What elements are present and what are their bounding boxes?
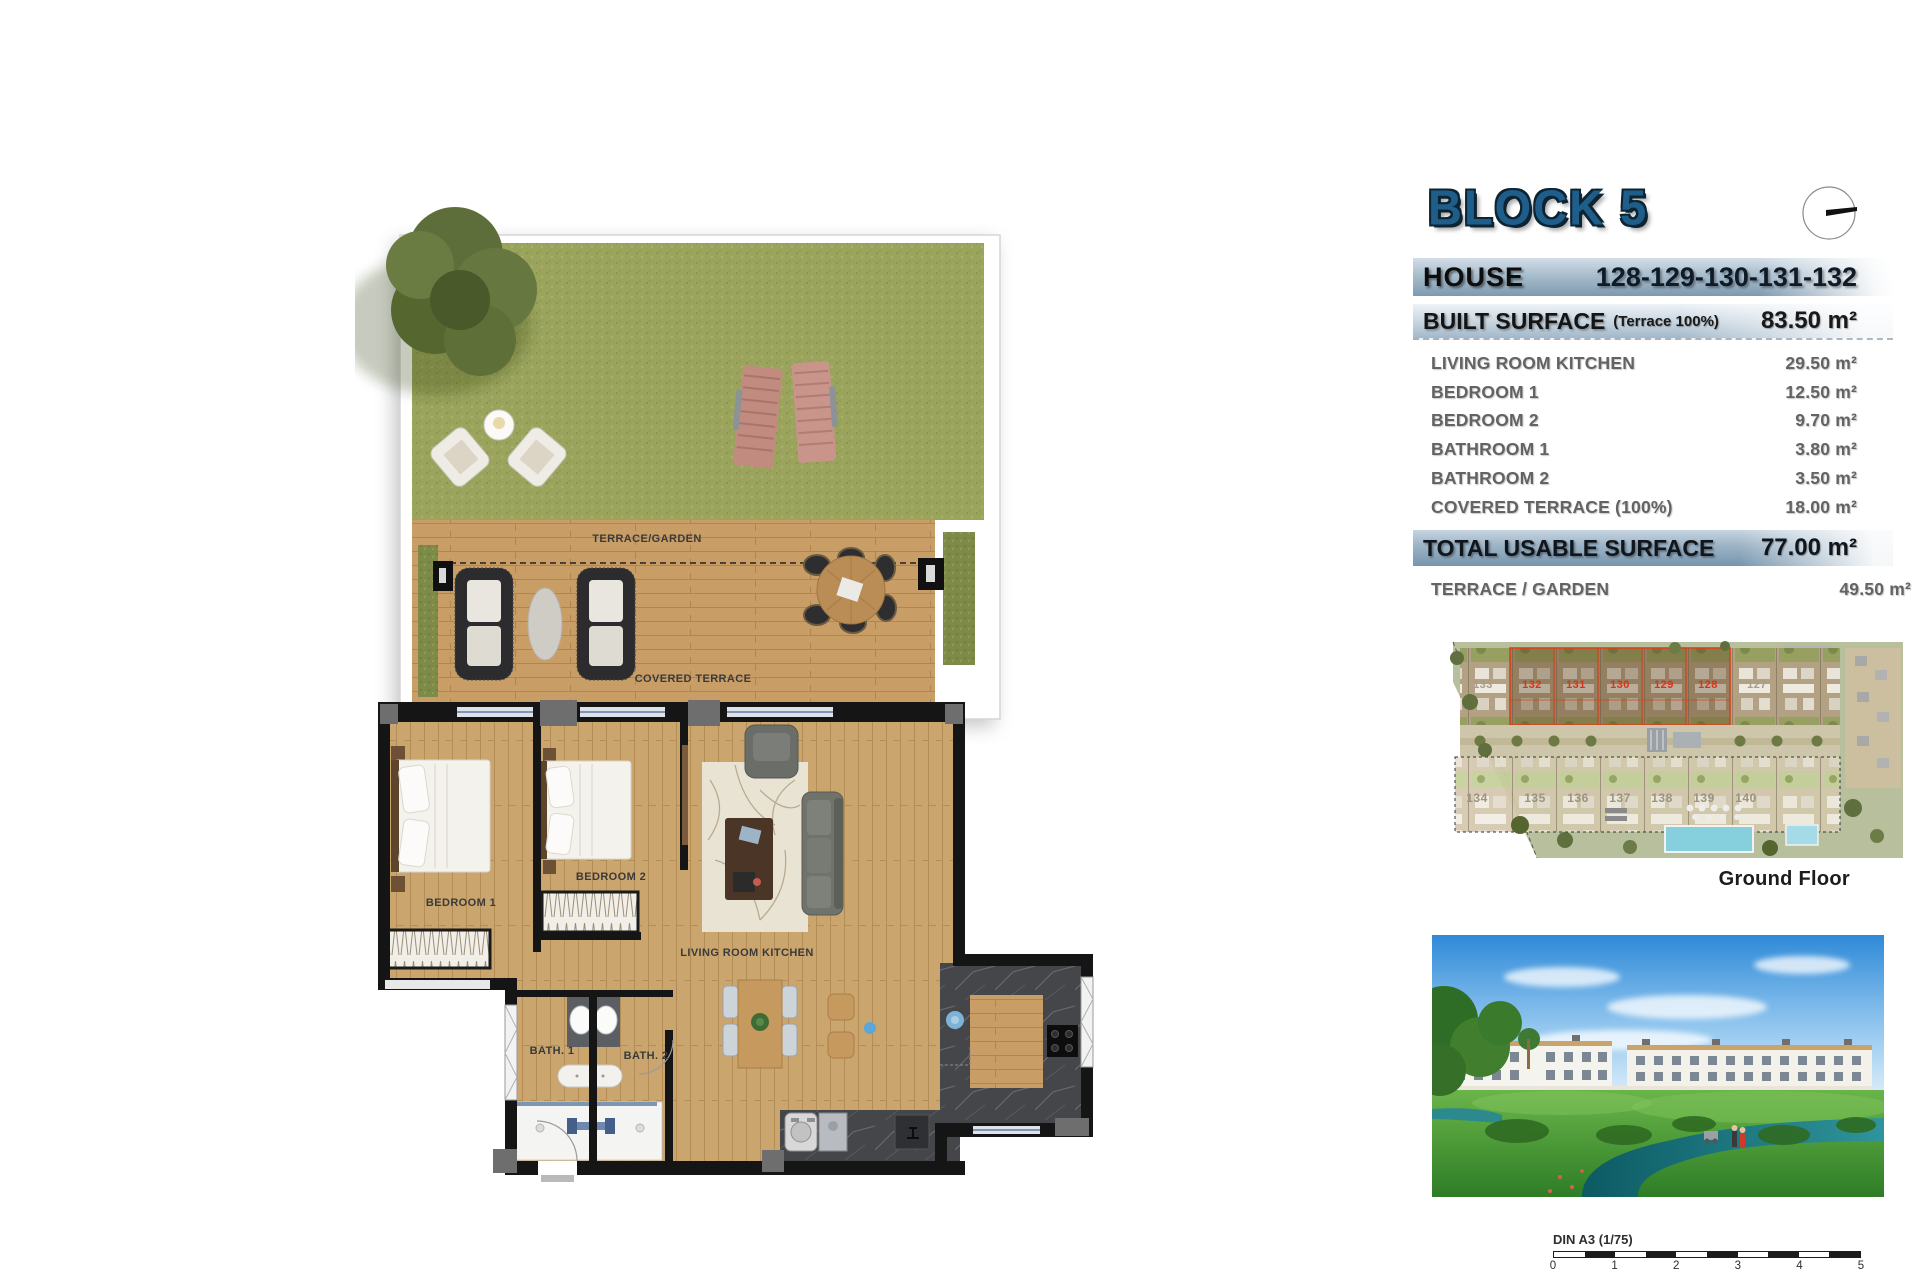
row-value: 12.50 m² [1785,382,1857,403]
unit-number: 138 [1651,791,1673,805]
row-label: BATHROOM 2 [1431,468,1549,489]
built-surface-label: BUILT SURFACE [1423,308,1605,335]
interior [388,720,1087,1169]
scale-tick: 5 [1858,1260,1864,1272]
bath1-label: BATH. 1 [530,1045,575,1057]
scale-tick: 1 [1611,1260,1617,1272]
unit-number-highlight: 130 [1610,679,1630,691]
bedroom1-label: BEDROOM 1 [426,897,496,909]
unit-number: 134 [1466,791,1488,805]
scale-numbers: 0 1 2 3 4 5 [1553,1260,1861,1274]
terrace-garden-label: TERRACE/GARDEN [592,533,702,545]
scale-ruler [1553,1251,1861,1258]
unit-number: 127 [1747,679,1767,691]
terrace-dining-table [804,548,896,633]
unit-number-highlight: 132 [1522,679,1542,691]
house-bar: HOUSE 128-129-130-131-132 [1413,258,1893,296]
row-value: 3.50 m² [1795,468,1857,489]
floor-plan: TERRACE/GARDEN COVERED TERRACE [355,160,1115,1200]
row-label: COVERED TERRACE (100%) [1431,497,1673,518]
site-plan: 133 132 131 130 129 128 127 134 135 136 … [1425,640,1905,875]
surface-table: LIVING ROOM KITCHEN29.50 m² BEDROOM 112.… [1413,349,1893,522]
built-surface-bar: BUILT SURFACE (Terrace 100%) 83.50 m² [1413,304,1893,340]
house-label: HOUSE [1423,262,1524,293]
table-row: COVERED TERRACE (100%)18.00 m² [1413,493,1893,522]
brochure-page: TERRACE/GARDEN COVERED TERRACE [0,0,1920,1280]
row-label: BEDROOM 1 [1431,382,1539,403]
row-label: LIVING ROOM KITCHEN [1431,353,1635,374]
unit-number: 135 [1524,791,1546,805]
row-value: 9.70 m² [1795,410,1857,431]
site-road [1460,725,1840,757]
scale-tick: 2 [1673,1260,1679,1272]
scale-label: DIN A3 (1/75) [1553,1232,1633,1247]
bedroom2-label: BEDROOM 2 [576,871,646,883]
scale-tick: 0 [1550,1260,1556,1272]
built-surface-note: (Terrace 100%) [1613,313,1719,330]
unit-number: 140 [1735,791,1757,805]
row-label: BATHROOM 1 [1431,439,1549,460]
unit-number-highlight: 131 [1566,679,1586,691]
row-value: 3.80 m² [1795,439,1857,460]
unit-number-highlight: 129 [1654,679,1674,691]
bedroom-1 [388,746,490,968]
built-surface-value: 83.50 m² [1761,307,1857,335]
site-top-row [1460,648,1840,725]
scale-tick: 3 [1735,1260,1741,1272]
total-value: 77.00 m² [1761,534,1857,562]
compass-icon [1800,184,1858,242]
terrace-garden-row: TERRACE / GARDEN 49.50 m² [1413,576,1920,602]
table-row: BEDROOM 29.70 m² [1413,407,1893,436]
unit-number: 139 [1693,791,1715,805]
garden-terrace: TERRACE/GARDEN COVERED TERRACE [355,207,1000,719]
row-value: 18.00 m² [1785,497,1857,518]
table-row: BATHROOM 23.50 m² [1413,464,1893,493]
covered-terrace-label: COVERED TERRACE [635,673,752,685]
terrace-garden-value: 49.50 m² [1839,579,1911,600]
total-surface-bar: TOTAL USABLE SURFACE 77.00 m² [1413,530,1893,566]
hedge-right [943,532,975,665]
unit-number-highlight: 128 [1698,679,1718,691]
terrace-garden-label: TERRACE / GARDEN [1431,579,1609,600]
bath2-label: BATH. 2 [624,1050,669,1062]
row-value: 29.50 m² [1785,353,1857,374]
bedroom-2 [540,748,638,932]
house-numbers: 128-129-130-131-132 [1596,262,1857,293]
row-label: BEDROOM 2 [1431,410,1539,431]
unit-number: 136 [1567,791,1589,805]
total-label: TOTAL USABLE SURFACE [1423,535,1714,562]
scale-tick: 4 [1796,1260,1802,1272]
unit-number: 133 [1473,679,1493,691]
table-row: LIVING ROOM KITCHEN29.50 m² [1413,349,1893,378]
project-photo [1432,935,1884,1197]
unit-number: 137 [1609,791,1631,805]
site-plan-caption: Ground Floor [1598,868,1850,891]
table-row: BEDROOM 112.50 m² [1413,378,1893,407]
living-label: LIVING ROOM KITCHEN [680,947,814,959]
table-row: BATHROOM 13.80 m² [1413,435,1893,464]
